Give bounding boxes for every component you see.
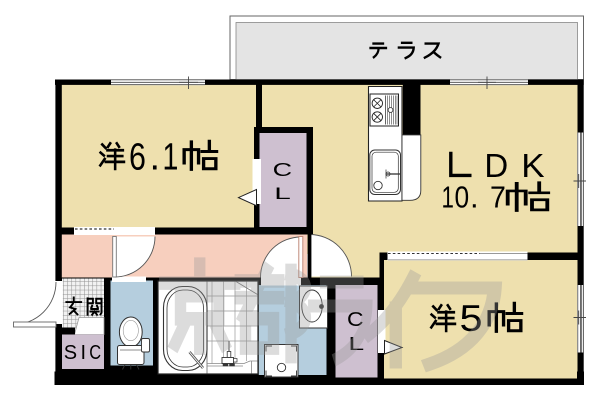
svg-text:I: I (81, 342, 87, 364)
svg-text:1: 1 (163, 137, 179, 179)
svg-text:S: S (64, 342, 77, 364)
svg-text:C: C (273, 160, 293, 180)
svg-text:K: K (521, 148, 545, 185)
svg-text:L: L (274, 184, 291, 203)
svg-text:0: 0 (455, 181, 470, 215)
svg-text:7: 7 (490, 180, 506, 214)
svg-text:C: C (89, 340, 101, 363)
svg-text:1: 1 (442, 180, 454, 214)
svg-text:6: 6 (129, 136, 146, 178)
svg-text:D: D (484, 147, 508, 184)
svg-text:.: . (470, 180, 479, 215)
svg-text:.: . (150, 137, 161, 179)
